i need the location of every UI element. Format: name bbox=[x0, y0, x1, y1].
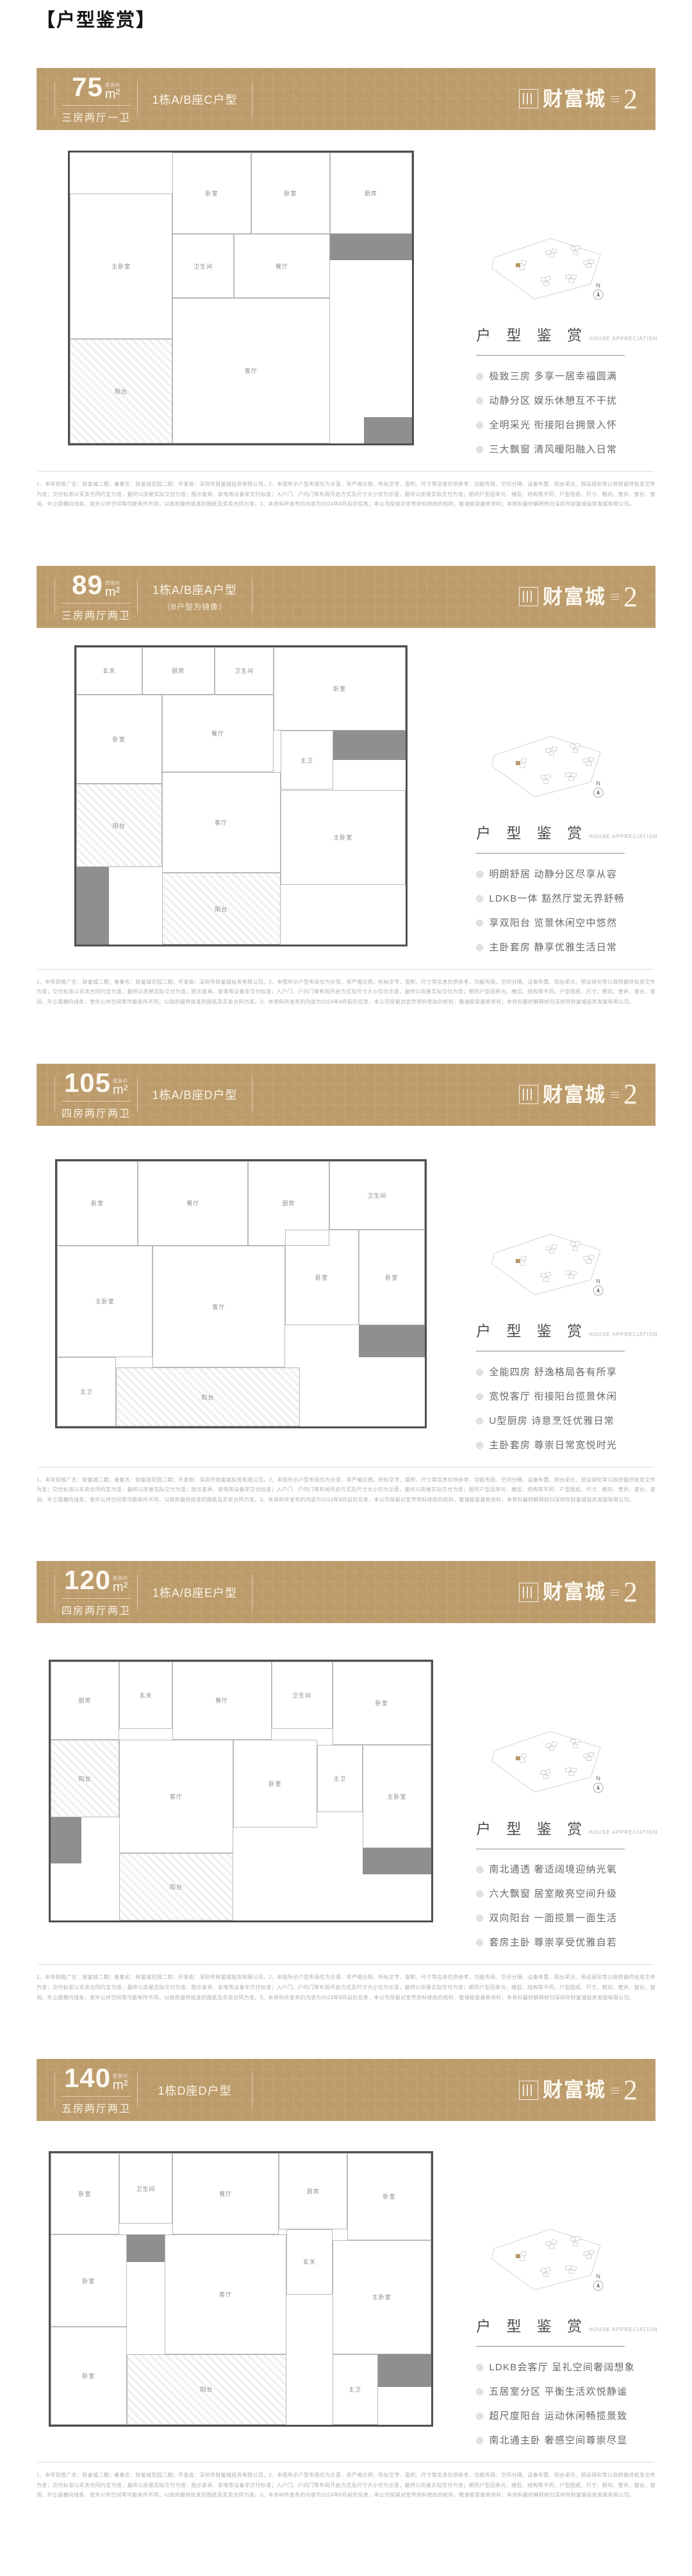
appreciation-title: 户 型 鉴 赏HOUSE APPRECIATION bbox=[445, 1817, 655, 1838]
room-label: 卧室 bbox=[375, 1699, 388, 1707]
room: 厨房 bbox=[279, 2153, 347, 2229]
room: 卧室 bbox=[359, 1230, 425, 1325]
bullet-icon: ◎ bbox=[476, 1889, 483, 1897]
room-label: 玄关 bbox=[139, 1691, 152, 1699]
room: 卧室 bbox=[76, 695, 162, 784]
room-label: 厨房 bbox=[365, 189, 377, 197]
balcony: 阳台 bbox=[119, 1853, 233, 1920]
structure-slab bbox=[363, 1848, 431, 1874]
floor-plan: 卧室 卫生间 餐厅 厨房 卧室 卧室 客厅 玄关 主卧室 卧室 主卫 阳台 bbox=[49, 2151, 433, 2427]
feature-item: ◎六大飘窗 居室敞亮空间升级 bbox=[476, 1887, 655, 1900]
floor-plan: 厨房 玄关 餐厅 卫生间 卧室 客厅 卧室 主卫 主卧室 阳台 阳台 bbox=[49, 1660, 433, 1922]
room-label: 餐厅 bbox=[215, 1696, 228, 1705]
page-title: 【户型鉴赏】 bbox=[37, 5, 655, 32]
brand-phase: 2 bbox=[623, 1580, 638, 1604]
header-divider bbox=[252, 1077, 252, 1112]
brand-logo: 财富城 2 bbox=[519, 87, 638, 111]
bullet-icon: ◎ bbox=[476, 420, 483, 429]
room: 主卧室 bbox=[70, 194, 172, 339]
balcony: 阳台 bbox=[162, 873, 281, 944]
room: 餐厅 bbox=[162, 695, 274, 772]
structure-slab bbox=[364, 417, 412, 443]
feature-item: ◎宽悦客厅 衔接阳台揽景休闲 bbox=[476, 1389, 655, 1403]
site-plan: N bbox=[474, 235, 627, 306]
info-column: N 户 型 鉴 赏HOUSE APPRECIATION ◎全能四房 舒逸格局各有… bbox=[445, 1136, 655, 1451]
site-plan: N bbox=[474, 1728, 627, 1799]
brand-phase: 2 bbox=[623, 87, 638, 111]
area-unit: m² bbox=[113, 2079, 128, 2092]
bullet-icon: ◎ bbox=[476, 918, 483, 927]
bullet-icon: ◎ bbox=[476, 870, 483, 878]
room-label: 卧室 bbox=[91, 1199, 104, 1207]
bullet-icon: ◎ bbox=[476, 445, 483, 453]
room-label: 阳台 bbox=[201, 2385, 213, 2393]
compass-label: N bbox=[596, 1776, 600, 1782]
feature-item: ◎南北通透 奢适阔境迎纳光氧 bbox=[476, 1862, 655, 1876]
room-label: 阳台 bbox=[78, 1774, 91, 1783]
brand-phase: 2 bbox=[623, 2078, 638, 2102]
feature-list: ◎全能四房 舒逸格局各有所享 ◎宽悦客厅 衔接阳台揽景休闲 ◎U型厨房 诗意烹饪… bbox=[445, 1354, 655, 1451]
room-label: 卧室 bbox=[78, 2190, 91, 2198]
title-rule bbox=[476, 1849, 625, 1849]
brand-seal-icon bbox=[519, 2081, 538, 2100]
room-label: 主卫 bbox=[333, 1774, 346, 1783]
room-label: 餐厅 bbox=[186, 1199, 199, 1207]
bullet-icon: ◎ bbox=[476, 2387, 483, 2395]
room: 主卧室 bbox=[363, 1745, 431, 1849]
floor-plan: 玄关 厨房 卫生间 卧室 卧室 餐厅 客厅 主卫 主卧室 阳台 阳台 bbox=[74, 645, 408, 946]
section-105: 105建面约m² 四房两厅两卫 1栋A/B座D户型 财富城 2 卧室 餐厅 厨房 bbox=[37, 1064, 655, 1505]
section-header: 105建面约m² 四房两厅两卫 1栋A/B座D户型 财富城 2 bbox=[37, 1064, 655, 1126]
room: 卧室 bbox=[172, 153, 251, 234]
area-value: 105 bbox=[64, 1069, 111, 1096]
unit-type: 1栋D座D户型 bbox=[142, 2082, 248, 2099]
title-rule bbox=[476, 853, 625, 854]
title-rule bbox=[476, 2346, 625, 2347]
unit-type: 1栋A/B座C户型 bbox=[142, 91, 248, 108]
disclaimer-text: 1、本项目推广名：财富城二期；备案名：财富城花园二期；开发商：深圳市财富城投资有… bbox=[37, 2470, 655, 2500]
brand-phase: 2 bbox=[623, 1082, 638, 1106]
brand-logo: 财富城 2 bbox=[519, 1082, 638, 1106]
area-underline bbox=[62, 2096, 131, 2097]
room-label: 厨房 bbox=[172, 666, 185, 675]
room-label: 卧室 bbox=[82, 2372, 95, 2380]
bullet-icon: ◎ bbox=[476, 1392, 483, 1400]
room-config: 三房两厅两卫 bbox=[60, 607, 132, 622]
room: 主卫 bbox=[317, 1745, 363, 1812]
bullet-icon: ◎ bbox=[476, 943, 483, 951]
section-75: 75建面约m² 三房两厅一卫 1栋A/B座C户型 财富城 2 卧室 卧室 主卧室 bbox=[37, 68, 655, 509]
compass-label: N bbox=[596, 1278, 600, 1284]
bullet-icon: ◎ bbox=[476, 1913, 483, 1922]
room: 卫生间 bbox=[172, 234, 234, 298]
area-block: 75建面约m² 三房两厅一卫 bbox=[55, 74, 137, 124]
room: 卫生间 bbox=[215, 647, 274, 695]
room: 餐厅 bbox=[172, 2153, 279, 2234]
balcony: 阳台 bbox=[116, 1367, 300, 1426]
room: 卫生间 bbox=[119, 2153, 172, 2224]
room: 餐厅 bbox=[172, 1662, 271, 1739]
section-divider bbox=[38, 1964, 654, 1965]
room-label: 主卧室 bbox=[388, 1792, 407, 1801]
header-divider bbox=[252, 1574, 252, 1610]
area-unit: m² bbox=[105, 586, 120, 599]
room: 卫生间 bbox=[272, 1662, 333, 1729]
room-label: 客厅 bbox=[219, 2290, 232, 2299]
bullet-icon: ◎ bbox=[476, 1416, 483, 1424]
info-column: N 户 型 鉴 赏HOUSE APPRECIATION ◎明朗舒居 动静分区尽享… bbox=[445, 638, 655, 954]
room-config: 三房两厅一卫 bbox=[60, 109, 132, 124]
feature-item: ◎三大飘窗 清风暖阳融入日常 bbox=[476, 442, 655, 456]
room: 卧室 bbox=[233, 1740, 317, 1828]
feature-item: ◎主卧套房 静享优雅生活日常 bbox=[476, 940, 655, 954]
room-label: 卫生间 bbox=[292, 1691, 311, 1699]
section-divider bbox=[38, 471, 654, 472]
room-label: 主卧室 bbox=[111, 262, 131, 270]
feature-item: ◎南北通主卧 奢感空间尊崇尽显 bbox=[476, 2433, 655, 2447]
area-block: 140建面约m² 五房两厅两卫 bbox=[55, 2065, 137, 2115]
room: 卧室 bbox=[333, 1662, 431, 1744]
room: 卧室 bbox=[285, 1230, 359, 1325]
room: 餐厅 bbox=[138, 1161, 248, 1246]
feature-item: ◎双向阳台 一面揽景一面生活 bbox=[476, 1911, 655, 1924]
feature-item: ◎明朗舒居 动静分区尽享从容 bbox=[476, 867, 655, 880]
area-underline bbox=[62, 1598, 131, 1599]
room: 主卧室 bbox=[333, 2240, 431, 2354]
section-header: 89建面约m² 三房两厅两卫 1栋A/B座A户型（B户型为镜像） 财富城 2 bbox=[37, 566, 655, 628]
section-divider bbox=[38, 1467, 654, 1467]
room: 卧室 bbox=[51, 2327, 127, 2425]
header-divider bbox=[252, 81, 252, 117]
section-89: 89建面约m² 三房两厅两卫 1栋A/B座A户型（B户型为镜像） 财富城 2 玄… bbox=[37, 566, 655, 1007]
brand-seal-icon bbox=[519, 1085, 538, 1104]
feature-item: ◎享双阳台 览景休闲空中悠然 bbox=[476, 916, 655, 929]
bullet-icon: ◎ bbox=[476, 1441, 483, 1449]
room-label: 主卫 bbox=[80, 1387, 93, 1396]
feature-item: ◎U型厨房 诗意烹饪优雅日常 bbox=[476, 1414, 655, 1427]
brand-subtext-icon bbox=[611, 593, 619, 600]
room: 卧室 bbox=[347, 2153, 431, 2240]
compass-label: N bbox=[596, 780, 600, 786]
room: 客厅 bbox=[162, 772, 281, 873]
floor-plan: 卧室 卧室 主卧室 卫生间 厨房 餐厅 客厅 阳台 bbox=[68, 151, 414, 445]
room-label: 餐厅 bbox=[276, 262, 288, 270]
room: 客厅 bbox=[152, 1246, 285, 1367]
brand-subtext-icon bbox=[611, 2087, 619, 2093]
room-label: 卧室 bbox=[206, 189, 218, 197]
room-label: 客厅 bbox=[213, 1303, 226, 1311]
header-divider bbox=[252, 579, 252, 615]
area-underline bbox=[62, 603, 131, 604]
balcony: 阳台 bbox=[76, 784, 162, 867]
feature-item: ◎极致三房 多享一居幸福圆满 bbox=[476, 369, 655, 383]
section-140: 140建面约m² 五房两厅两卫 1栋D座D户型 财富城 2 卧室 卫生间 餐厅 bbox=[37, 2059, 655, 2500]
bullet-icon: ◎ bbox=[476, 1367, 483, 1376]
room-label: 阳台 bbox=[215, 905, 227, 913]
brand-seal-icon bbox=[519, 89, 538, 108]
room-label: 卫生间 bbox=[194, 262, 213, 270]
room: 卧室 bbox=[51, 2153, 119, 2234]
room-label: 卧室 bbox=[333, 684, 346, 693]
info-column: N 户 型 鉴 赏HOUSE APPRECIATION ◎LDKB会客厅 呈礼空… bbox=[445, 2131, 655, 2447]
site-plan: N bbox=[474, 2226, 627, 2297]
structure-slab bbox=[127, 2234, 165, 2261]
brand-logo: 财富城 2 bbox=[519, 585, 638, 609]
appreciation-subtitle: HOUSE APPRECIATION bbox=[589, 1829, 657, 1835]
balcony: 阳台 bbox=[51, 1740, 119, 1817]
room-label: 主卫 bbox=[301, 756, 313, 764]
disclaimer-text: 1、本项目推广名：财富城二期；备案名：财富城花园二期；开发商：深圳市财富城投资有… bbox=[37, 479, 655, 509]
room-label: 玄关 bbox=[103, 666, 115, 675]
room-label: 餐厅 bbox=[219, 2190, 232, 2198]
brand-subtext-icon bbox=[611, 1091, 619, 1098]
room: 主卫 bbox=[281, 731, 333, 790]
disclaimer-text: 1、本项目推广名：财富城二期；备案名：财富城花园二期；开发商：深圳市财富城投资有… bbox=[37, 1475, 655, 1505]
section-header: 75建面约m² 三房两厅一卫 1栋A/B座C户型 财富城 2 bbox=[37, 68, 655, 130]
appreciation-title: 户 型 鉴 赏HOUSE APPRECIATION bbox=[445, 1319, 655, 1341]
bullet-icon: ◎ bbox=[476, 2436, 483, 2444]
room-label: 卫生间 bbox=[136, 2184, 155, 2193]
brand-subtext-icon bbox=[611, 1589, 619, 1596]
area-underline bbox=[62, 1101, 131, 1102]
balcony: 阳台 bbox=[70, 339, 172, 443]
bullet-icon: ◎ bbox=[476, 2411, 483, 2420]
bullet-icon: ◎ bbox=[476, 1938, 483, 1946]
section-divider bbox=[38, 969, 654, 970]
room-label: 厨房 bbox=[283, 1199, 295, 1207]
brand-seal-icon bbox=[519, 1583, 538, 1602]
room: 厨房 bbox=[330, 153, 412, 234]
area-value: 75 bbox=[72, 74, 103, 101]
room-config: 五房两厅两卫 bbox=[60, 2100, 132, 2115]
site-plan: N bbox=[474, 1231, 627, 1302]
bullet-icon: ◎ bbox=[476, 894, 483, 902]
bullet-icon: ◎ bbox=[476, 1865, 483, 1873]
brand-name: 财富城 bbox=[543, 587, 606, 607]
feature-item: ◎超尺度阳台 运动休闲畅揽景致 bbox=[476, 2409, 655, 2422]
appreciation-subtitle: HOUSE APPRECIATION bbox=[589, 2327, 657, 2332]
room-label: 主卫 bbox=[349, 2385, 361, 2393]
unit-type: 1栋A/B座D户型 bbox=[142, 1086, 248, 1103]
mirror-note: （B户型为镜像） bbox=[142, 601, 248, 612]
section-header: 140建面约m² 五房两厅两卫 1栋D座D户型 财富城 2 bbox=[37, 2059, 655, 2121]
room: 玄关 bbox=[119, 1662, 172, 1729]
header-divider bbox=[252, 2072, 252, 2108]
brand-logo: 财富城 2 bbox=[519, 1580, 638, 1604]
compass-label: N bbox=[596, 2273, 600, 2279]
info-column: N 户 型 鉴 赏HOUSE APPRECIATION ◎极致三房 多享一居幸福… bbox=[445, 140, 655, 456]
appreciation-title: 户 型 鉴 赏HOUSE APPRECIATION bbox=[445, 821, 655, 843]
area-unit: m² bbox=[113, 1084, 128, 1096]
room-label: 阳台 bbox=[115, 387, 128, 395]
room-label: 卧室 bbox=[385, 1273, 398, 1282]
section-divider bbox=[38, 2462, 654, 2463]
floor-plan: 卧室 餐厅 厨房 卫生间 主卧室 客厅 卧室 卧室 主卫 阳台 bbox=[55, 1159, 427, 1428]
title-rule bbox=[476, 1351, 625, 1351]
room: 餐厅 bbox=[234, 234, 330, 298]
room-label: 卧室 bbox=[383, 2192, 396, 2200]
room-label: 客厅 bbox=[245, 367, 258, 375]
room-label: 卧室 bbox=[315, 1273, 328, 1282]
room-label: 主卧室 bbox=[372, 2293, 391, 2301]
room: 卧室 bbox=[251, 153, 330, 234]
brand-phase: 2 bbox=[623, 585, 638, 609]
room-label: 阳台 bbox=[113, 822, 126, 830]
site-plan: N bbox=[474, 733, 627, 804]
room: 卧室 bbox=[51, 2234, 127, 2327]
brand-subtext-icon bbox=[611, 95, 619, 102]
area-block: 105建面约m² 四房两厅两卫 bbox=[55, 1069, 137, 1120]
bullet-icon: ◎ bbox=[476, 396, 483, 404]
feature-item: ◎动静分区 娱乐休憩互不干扰 bbox=[476, 393, 655, 407]
balcony: 阳台 bbox=[127, 2354, 286, 2425]
room-label: 卧室 bbox=[268, 1779, 281, 1788]
brand-name: 财富城 bbox=[543, 2080, 606, 2100]
area-value: 140 bbox=[64, 2065, 111, 2092]
unit-type: 1栋A/B座E户型 bbox=[142, 1584, 248, 1601]
structure-slab bbox=[378, 2354, 431, 2387]
area-unit: m² bbox=[113, 1581, 128, 1594]
structure-slab bbox=[333, 731, 406, 760]
room: 玄关 bbox=[286, 2229, 332, 2295]
room: 主卧室 bbox=[281, 790, 406, 885]
room: 卧室 bbox=[57, 1161, 138, 1246]
room: 厨房 bbox=[51, 1662, 119, 1739]
room-config: 四房两厅两卫 bbox=[60, 1105, 132, 1120]
room: 厨房 bbox=[142, 647, 215, 695]
appreciation-subtitle: HOUSE APPRECIATION bbox=[589, 1332, 657, 1337]
info-column: N 户 型 鉴 赏HOUSE APPRECIATION ◎南北通透 奢适阔境迎纳… bbox=[445, 1633, 655, 1949]
disclaimer-text: 1、本项目推广名：财富城二期；备案名：财富城花园二期；开发商：深圳市财富城投资有… bbox=[37, 1972, 655, 2002]
room-label: 玄关 bbox=[303, 2258, 316, 2266]
feature-list: ◎明朗舒居 动静分区尽享从容 ◎LDKB一体 豁然厅堂无界舒畅 ◎享双阳台 览景… bbox=[445, 856, 655, 954]
area-block: 120建面约m² 四房两厅两卫 bbox=[55, 1567, 137, 1617]
feature-item: ◎全明采光 衔接阳台拥景入怀 bbox=[476, 418, 655, 431]
brand-name: 财富城 bbox=[543, 1085, 606, 1105]
room-label: 卧室 bbox=[82, 2277, 95, 2285]
structure-slab bbox=[359, 1325, 425, 1357]
feature-list: ◎极致三房 多享一居幸福圆满 ◎动静分区 娱乐休憩互不干扰 ◎全明采光 衔接阳台… bbox=[445, 358, 655, 456]
area-unit: m² bbox=[105, 88, 120, 101]
area-block: 89建面约m² 三房两厅两卫 bbox=[55, 572, 137, 622]
area-value: 120 bbox=[64, 1567, 111, 1594]
structure-slab bbox=[51, 1817, 81, 1864]
room: 客厅 bbox=[165, 2234, 286, 2354]
appreciation-title: 户 型 鉴 赏HOUSE APPRECIATION bbox=[445, 323, 655, 345]
unit-type: 1栋A/B座A户型 bbox=[142, 581, 248, 598]
brochure-page: 【户型鉴赏】 75建面约m² 三房两厅一卫 1栋A/B座C户型 财富城 2 bbox=[0, 0, 692, 2576]
appreciation-title: 户 型 鉴 赏HOUSE APPRECIATION bbox=[445, 2314, 655, 2336]
structure-slab bbox=[76, 867, 109, 945]
room-label: 阳台 bbox=[201, 1393, 214, 1401]
feature-item: ◎套房主卧 尊崇享受优雅自若 bbox=[476, 1935, 655, 1949]
room-label: 厨房 bbox=[307, 2187, 320, 2195]
room: 玄关 bbox=[76, 647, 142, 695]
room-label: 主卧室 bbox=[95, 1297, 115, 1305]
room-label: 卧室 bbox=[113, 735, 126, 743]
structure-slab bbox=[330, 234, 412, 260]
brand-name: 财富城 bbox=[543, 1582, 606, 1602]
room-label: 客厅 bbox=[170, 1792, 183, 1801]
room-label: 主卧室 bbox=[333, 833, 352, 841]
room-label: 卫生间 bbox=[235, 666, 254, 675]
bullet-icon: ◎ bbox=[476, 2363, 483, 2371]
feature-item: ◎全能四房 舒逸格局各有所享 bbox=[476, 1365, 655, 1378]
bullet-icon: ◎ bbox=[476, 372, 483, 380]
feature-item: ◎LDKB一体 豁然厅堂无界舒畅 bbox=[476, 891, 655, 905]
room: 主卫 bbox=[333, 2354, 378, 2425]
compass-label: N bbox=[596, 282, 600, 288]
room: 主卧室 bbox=[57, 1246, 152, 1357]
brand-name: 财富城 bbox=[543, 89, 606, 109]
feature-item: ◎LDKB会客厅 呈礼空间奢阔想象 bbox=[476, 2360, 655, 2374]
room-label: 阳台 bbox=[170, 1883, 183, 1891]
room-label: 厨房 bbox=[78, 1696, 91, 1705]
title-rule bbox=[476, 355, 625, 356]
room-label: 客厅 bbox=[215, 818, 227, 827]
feature-list: ◎LDKB会客厅 呈礼空间奢阔想象 ◎五居室分区 平衡生活欢悦静谧 ◎超尺度阳台… bbox=[445, 2349, 655, 2447]
room: 客厅 bbox=[172, 298, 330, 443]
brand-seal-icon bbox=[519, 587, 538, 606]
area-underline bbox=[62, 105, 131, 106]
room-label: 卫生间 bbox=[367, 1191, 386, 1200]
room: 卫生间 bbox=[329, 1161, 425, 1230]
room-label: 卧室 bbox=[284, 189, 297, 197]
section-header: 120建面约m² 四房两厅两卫 1栋A/B座E户型 财富城 2 bbox=[37, 1561, 655, 1623]
room-config: 四房两厅两卫 bbox=[60, 1602, 132, 1617]
room: 卧室 bbox=[274, 647, 406, 731]
area-value: 89 bbox=[72, 572, 103, 599]
appreciation-subtitle: HOUSE APPRECIATION bbox=[589, 834, 657, 839]
feature-item: ◎主卧套房 尊崇日常宽悦时光 bbox=[476, 1438, 655, 1451]
disclaimer-text: 1、本项目推广名：财富城二期；备案名：财富城花园二期；开发商：深圳市财富城投资有… bbox=[37, 977, 655, 1007]
room-label: 餐厅 bbox=[211, 729, 224, 738]
feature-list: ◎南北通透 奢适阔境迎纳光氧 ◎六大飘窗 居室敞亮空间升级 ◎双向阳台 一面揽景… bbox=[445, 1851, 655, 1949]
room: 主卫 bbox=[57, 1357, 116, 1426]
section-120: 120建面约m² 四房两厅两卫 1栋A/B座E户型 财富城 2 厨房 玄关 餐厅 bbox=[37, 1561, 655, 2002]
brand-logo: 财富城 2 bbox=[519, 2078, 638, 2102]
room: 客厅 bbox=[119, 1740, 233, 1854]
appreciation-subtitle: HOUSE APPRECIATION bbox=[589, 336, 657, 342]
feature-item: ◎五居室分区 平衡生活欢悦静谧 bbox=[476, 2384, 655, 2398]
